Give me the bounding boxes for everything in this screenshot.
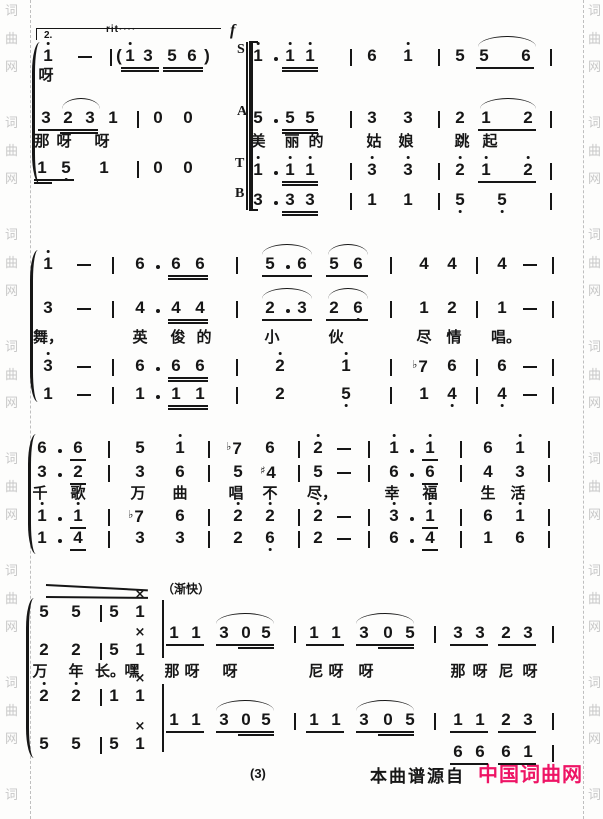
slur-arc — [262, 288, 312, 299]
lyric-syllable: 歌 — [70, 486, 85, 501]
lyric-syllable: 呀 — [472, 664, 487, 679]
note-token: 5 — [253, 110, 262, 126]
note-token: ) — [204, 48, 210, 64]
note-token: 6 — [175, 508, 184, 524]
octave-dot-below — [458, 210, 461, 213]
note-token: 1× — [135, 642, 144, 658]
note-token: 1 — [135, 386, 144, 402]
note-token: 4 — [447, 386, 456, 402]
watermark-char: 网 — [5, 60, 18, 73]
watermark-char: 曲 — [5, 704, 18, 717]
barline — [236, 359, 238, 376]
rhythm-dot — [156, 309, 160, 313]
octave-dot-above — [392, 502, 395, 505]
lyric-syllable: 尼 — [308, 664, 323, 679]
note-token: 1 — [309, 712, 318, 728]
note-token: 4 — [425, 530, 434, 546]
note-token: 1× — [135, 688, 144, 704]
watermark-char: 曲 — [5, 480, 18, 493]
octave-dot-above — [458, 156, 461, 159]
note-token: 1 — [125, 48, 134, 64]
system-brace — [28, 434, 38, 554]
note-token: 1 — [453, 712, 462, 728]
watermark-char: 曲 — [588, 32, 601, 45]
octave-dot-above — [288, 42, 291, 45]
note-token: 5 — [167, 48, 176, 64]
note-token: 1 — [171, 386, 180, 402]
label-voice_s: S — [237, 42, 245, 58]
lyric-syllable: 英 — [132, 330, 147, 345]
note-token: 6 — [483, 508, 492, 524]
underline-beam — [378, 734, 414, 736]
lyric-syllable: 尽， — [307, 486, 337, 501]
label-rit: rit···· — [106, 24, 136, 35]
note-token: 4 — [195, 300, 204, 316]
underline-beam — [282, 181, 318, 183]
note-token: 6 — [265, 440, 274, 456]
rhythm-dot — [156, 367, 160, 371]
underline-beam — [422, 549, 438, 551]
note-token: 5 — [261, 712, 270, 728]
rhythm-dot — [58, 449, 62, 453]
rhythm-dot — [286, 265, 290, 269]
lyric-syllable: 生 — [480, 486, 495, 501]
barline — [208, 465, 210, 482]
octave-dot-above — [344, 352, 347, 355]
octave-dot-above — [268, 502, 271, 505]
watermark-char: 网 — [5, 396, 18, 409]
flat-sign: ♭ — [226, 440, 231, 453]
lyric-syllable: 美 — [250, 134, 265, 149]
underline-beam — [166, 731, 204, 733]
barline — [550, 193, 552, 210]
octave-dot-above — [316, 502, 319, 505]
note-token: ♭7 — [128, 508, 144, 525]
lyric-syllable: 情 — [446, 330, 461, 345]
slur-arc — [480, 98, 536, 109]
octave-dot-above — [518, 434, 521, 437]
underline-beam — [121, 67, 159, 69]
note-token: 3 — [515, 464, 524, 480]
watermark-char: 网 — [588, 620, 601, 633]
rhythm-dot — [410, 539, 414, 543]
note-token: 6 — [171, 358, 180, 374]
underline-beam — [238, 647, 274, 649]
barline — [100, 689, 102, 706]
note-token: 2 — [275, 386, 284, 402]
octave-dot-above — [46, 250, 49, 253]
underline-beam — [422, 459, 438, 461]
barline — [390, 387, 392, 404]
note-token: 6 — [353, 256, 362, 272]
barline — [552, 626, 554, 643]
note-token: 3 — [367, 162, 376, 178]
octave-dot-below — [500, 404, 503, 407]
underline-beam — [476, 67, 534, 69]
label-voice_b: B — [235, 186, 244, 202]
note-token: 5 — [109, 736, 118, 752]
lyric-syllable: 那 — [164, 664, 179, 679]
underline-beam — [378, 647, 414, 649]
label-voice_t: T — [235, 156, 244, 172]
rhythm-dot — [274, 171, 278, 175]
system-brace — [30, 250, 40, 402]
underline-beam — [450, 763, 488, 765]
watermark-char: 曲 — [5, 144, 18, 157]
watermark-char: 词 — [588, 676, 601, 689]
underline-beam — [282, 214, 318, 216]
watermark-char: 曲 — [588, 480, 601, 493]
note-token: 5 — [285, 110, 294, 126]
note-token: 3 — [367, 110, 376, 126]
slur-arc — [328, 244, 368, 255]
note-token: 6 — [367, 48, 376, 64]
rhythm-dot — [58, 473, 62, 477]
dash-note — [337, 516, 351, 518]
rhythm-dot — [274, 119, 278, 123]
flat-sign: ♭ — [128, 508, 133, 521]
barline — [108, 441, 110, 458]
watermark-char: 曲 — [588, 592, 601, 605]
note-token: 1 — [253, 162, 262, 178]
octave-dot-above — [308, 42, 311, 45]
note-token: 6 — [425, 464, 434, 480]
underline-beam — [478, 181, 536, 183]
barline — [350, 163, 352, 180]
watermark-char: 词 — [588, 788, 601, 801]
dash-note — [337, 448, 351, 450]
barline — [100, 737, 102, 754]
system-brace — [26, 598, 36, 758]
note-token: 6 — [135, 358, 144, 374]
note-token: 6 — [521, 48, 530, 64]
note-token: 5 — [341, 386, 350, 402]
note-token: 1 — [191, 625, 200, 641]
note-token: 2 — [313, 530, 322, 546]
barline — [208, 509, 210, 526]
note-token: 3 — [219, 712, 228, 728]
watermark-char: 曲 — [588, 144, 601, 157]
lyric-syllable: 长。 — [95, 664, 125, 679]
underline-beam — [450, 644, 488, 646]
dash-note — [77, 308, 91, 310]
octave-dot-above — [518, 502, 521, 505]
underline-beam — [282, 211, 318, 213]
note-token: 4 — [73, 530, 82, 546]
note-token: 1 — [481, 162, 490, 178]
barline — [548, 509, 550, 526]
note-token: 6 — [37, 440, 46, 456]
note-token: 5 — [479, 48, 488, 64]
rhythm-dot — [274, 201, 278, 205]
note-token: 1 — [515, 440, 524, 456]
note-token: 1 — [403, 48, 412, 64]
note-token: 1 — [175, 440, 184, 456]
underline-beam — [168, 322, 208, 324]
underline-beam — [262, 275, 312, 277]
barline-tall — [162, 600, 164, 658]
note-token: 1× — [135, 604, 144, 620]
note-token: 1 — [195, 386, 204, 402]
note-token: 5 — [265, 256, 274, 272]
underline-beam — [282, 67, 318, 69]
slur-arc — [62, 98, 100, 109]
underline-beam — [306, 644, 344, 646]
note-token: 2 — [523, 110, 532, 126]
note-token: 0 — [383, 712, 392, 728]
dash-note — [77, 394, 91, 396]
watermark-char: 网 — [588, 732, 601, 745]
note-token: 5 — [305, 110, 314, 126]
note-token: 5 — [233, 464, 242, 480]
underline-beam — [356, 731, 414, 733]
note-token: 6 — [187, 48, 196, 64]
note-token: 2 — [71, 688, 80, 704]
watermark-char: 词 — [5, 340, 18, 353]
note-token: 1 — [43, 48, 52, 64]
note-token: 6 — [475, 744, 484, 760]
underline-beam — [216, 731, 274, 733]
underline-beam — [356, 644, 414, 646]
note-token: ♭7 — [412, 358, 428, 375]
note-token: 3 — [253, 192, 262, 208]
barline — [434, 713, 436, 730]
barline — [298, 509, 300, 526]
note-token: 3 — [453, 625, 462, 641]
underline-beam — [238, 734, 274, 736]
barline — [548, 531, 550, 548]
note-token: 1 — [419, 300, 428, 316]
barline — [108, 531, 110, 548]
flat-sign: ♭ — [412, 358, 417, 371]
underline-beam — [168, 380, 208, 382]
lyric-syllable: 跳 — [454, 134, 469, 149]
note-token: 3 — [403, 162, 412, 178]
underline-beam — [326, 319, 368, 321]
note-token: 1 — [419, 386, 428, 402]
underline-beam — [326, 275, 368, 277]
watermark-char: 网 — [5, 172, 18, 185]
note-token: 6 — [447, 358, 456, 374]
barline — [476, 387, 478, 404]
underline-beam — [70, 483, 86, 485]
note-token: 6 — [171, 256, 180, 272]
note-token: 2 — [63, 110, 72, 126]
lyric-syllable: 呀 — [358, 664, 373, 679]
underline-beam — [450, 731, 488, 733]
barline — [476, 257, 478, 274]
octave-dot-above — [406, 156, 409, 159]
label-voice_a: A — [237, 104, 247, 120]
octave-dot-above — [392, 434, 395, 437]
note-token: 3 — [523, 712, 532, 728]
note-token: 1 — [43, 386, 52, 402]
note-token: 4 — [497, 386, 506, 402]
dash-note — [523, 308, 537, 310]
note-token: 2 — [447, 300, 456, 316]
note-token: 0 — [383, 625, 392, 641]
underline-beam — [422, 483, 438, 485]
lyric-syllable: 起 — [482, 134, 497, 149]
note-token: 1 — [169, 625, 178, 641]
octave-dot-above — [74, 682, 77, 685]
note-token: 3 — [297, 300, 306, 316]
note-token: 5 — [39, 604, 48, 620]
barline — [298, 465, 300, 482]
note-token: 6 — [135, 256, 144, 272]
note-token: 2 — [233, 530, 242, 546]
lyric-syllable: 伙 — [328, 330, 343, 345]
lyric-syllable: 小 — [264, 330, 279, 345]
note-token: 3 — [523, 625, 532, 641]
underline-beam — [70, 527, 86, 529]
source-text: 本曲谱源自 — [370, 762, 465, 787]
barline — [137, 111, 139, 128]
note-token: 1 — [191, 712, 200, 728]
underline-beam — [282, 129, 318, 131]
barline — [236, 301, 238, 318]
watermark-char: 词 — [588, 228, 601, 241]
note-token: 5 — [71, 736, 80, 752]
note-token: 6 — [515, 530, 524, 546]
system-brace — [32, 42, 42, 184]
underline-beam — [163, 70, 203, 72]
slur-arc — [262, 244, 312, 255]
watermark-char: 词 — [5, 452, 18, 465]
note-token: 4 — [171, 300, 180, 316]
note-token: 6 — [389, 530, 398, 546]
barline — [137, 161, 139, 178]
rhythm-dot — [286, 309, 290, 313]
note-token: 2 — [71, 642, 80, 658]
lyric-syllable: 唱。 — [491, 330, 521, 345]
note-token: 3 — [175, 530, 184, 546]
lyric-syllable: 呀 — [184, 664, 199, 679]
note-token: 6 — [297, 256, 306, 272]
note-token: 5 — [455, 48, 464, 64]
note-token: 1 — [367, 192, 376, 208]
lyric-syllable: 不 — [262, 486, 277, 501]
score-page: (3) 本曲谱源自 中国词曲网 词曲网词曲网词曲网词曲网词曲网词曲网词曲网词词曲… — [0, 0, 603, 819]
note-token: 1 — [425, 508, 434, 524]
note-token: 3 — [41, 110, 50, 126]
barline — [552, 301, 554, 318]
barline — [438, 193, 440, 210]
note-token: 2 — [455, 162, 464, 178]
note-token: 2 — [233, 508, 242, 524]
dash-note — [523, 366, 537, 368]
note-token: 1 — [403, 192, 412, 208]
barline — [552, 745, 554, 762]
lyric-syllable: 俊 — [170, 330, 185, 345]
note-token: 4 — [497, 256, 506, 272]
watermark-char: 词 — [588, 116, 601, 129]
note-token: 2 — [275, 358, 284, 374]
note-token: 4 — [419, 256, 428, 272]
barline — [434, 626, 436, 643]
note-token: 2 — [329, 300, 338, 316]
lyric-syllable: 福 — [422, 486, 437, 501]
rhythm-dot — [410, 473, 414, 477]
watermark-char: 网 — [5, 732, 18, 745]
note-token: 1 — [108, 110, 117, 126]
underline-beam — [168, 405, 208, 407]
note-token: 4 — [447, 256, 456, 272]
note-token: 3 — [359, 712, 368, 728]
note-token: 5 — [405, 712, 414, 728]
barline — [208, 531, 210, 548]
barline — [236, 257, 238, 274]
octave-dot-above — [428, 502, 431, 505]
watermark-char: 词 — [588, 340, 601, 353]
octave-dot-above — [256, 156, 259, 159]
watermark-char: 词 — [5, 788, 18, 801]
lyric-syllable: 尼 — [498, 664, 513, 679]
barline — [368, 465, 370, 482]
dash-note — [523, 394, 537, 396]
underline-beam — [262, 319, 312, 321]
underline-beam — [168, 275, 208, 277]
barline — [548, 441, 550, 458]
barline — [298, 441, 300, 458]
underline-beam — [168, 319, 208, 321]
note-token: 3 — [37, 464, 46, 480]
note-token: 1 — [331, 625, 340, 641]
note-token: 5 — [109, 642, 118, 658]
watermark-char: 曲 — [588, 704, 601, 717]
rhythm-dot — [156, 395, 160, 399]
barline — [460, 509, 462, 526]
note-token: 4 — [483, 464, 492, 480]
note-token: 1 — [285, 162, 294, 178]
note-token: 6 — [497, 358, 506, 374]
note-token: 1 — [169, 712, 178, 728]
barline — [552, 713, 554, 730]
octave-dot-above — [40, 502, 43, 505]
underline-beam — [166, 644, 204, 646]
rhythm-dot — [410, 517, 414, 521]
note-token: 3 — [305, 192, 314, 208]
note-token: 4 — [135, 300, 144, 316]
note-token: 0 — [153, 110, 162, 126]
note-token: 2 — [265, 508, 274, 524]
slur-arc — [216, 700, 274, 711]
watermark-char: 词 — [5, 116, 18, 129]
barline — [550, 163, 552, 180]
rhythm-dot — [274, 57, 278, 61]
note-token: 2 — [265, 300, 274, 316]
lyric-syllable: 的 — [308, 134, 323, 149]
note-token: 3 — [43, 300, 52, 316]
lyric-syllable: 姑 — [366, 134, 381, 149]
accel-line — [46, 596, 148, 598]
watermark-char: 曲 — [588, 256, 601, 269]
note-token: 1 — [475, 712, 484, 728]
watermark-char: 网 — [5, 284, 18, 297]
barline — [350, 111, 352, 128]
octave-dot-above — [526, 156, 529, 159]
underline-beam — [38, 129, 98, 131]
note-token: 6 — [501, 744, 510, 760]
note-token: 1 — [309, 625, 318, 641]
watermark-char: 词 — [5, 564, 18, 577]
note-token: 1 — [515, 508, 524, 524]
barline — [100, 643, 102, 660]
slur-arc — [356, 613, 414, 624]
underline-beam — [121, 70, 159, 72]
watermark-char: 词 — [5, 4, 18, 17]
note-token: 1 — [37, 508, 46, 524]
